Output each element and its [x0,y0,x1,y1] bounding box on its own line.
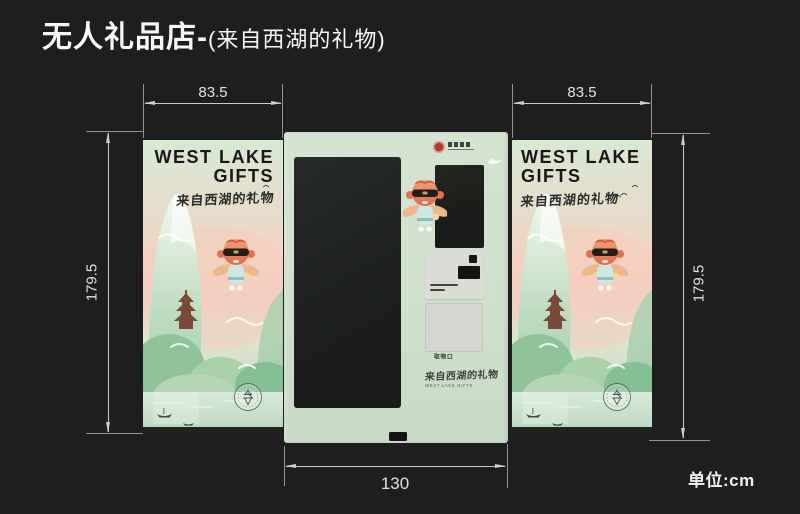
extension-line [512,84,513,138]
extension-line [86,433,143,434]
dim-label-left-panel-width: 83.5 [188,84,238,101]
title-main: 无人礼品店- [42,12,208,56]
qr-scanner-icon[interactable] [458,266,480,279]
arrow-down-icon [681,428,685,439]
arrow-down-icon [106,422,110,433]
page-title: 无人礼品店- (来自西湖的礼物) [42,12,386,56]
payment-instruction-line [430,289,445,291]
extension-line [86,131,143,132]
swan-icon [487,156,502,166]
dimension-line-left-height [104,132,113,433]
title-sub: (来自西湖的礼物) [208,22,386,54]
right-poster-panel: WEST LAKE GIFTS 来自西湖的礼物 [512,140,652,433]
dim-label-left-height: 179.5 [84,258,101,308]
dim-label-right-panel-width: 83.5 [557,84,607,101]
machine-slogan-block: 来自西湖的礼物 WEST LAKE GIFTS [425,367,489,391]
poster-title-line2: GIFTS [155,167,275,186]
arrow-right-icon [640,101,651,105]
pickup-door-label: 取物口 [434,354,453,360]
poster-text-block: WEST LAKE GIFTS 来自西湖的礼物 [521,148,641,208]
pickup-door[interactable] [425,303,483,352]
arrow-right-icon [495,464,506,468]
lock-icon [389,432,407,441]
brand-name-characters [448,142,474,147]
dimension-line-machine-width [285,462,506,471]
poster-title-line1: WEST LAKE [521,148,641,167]
brand-caption-line [448,149,474,151]
product-display-window [294,157,401,408]
camera-icon [469,255,477,263]
payment-instruction-line [430,284,458,286]
mascot-icon [402,177,448,239]
arrow-right-icon [271,101,282,105]
brand-logo [433,141,474,153]
poster-subtitle: 来自西湖的礼物 [154,187,275,210]
poster-subtitle: 来自西湖的礼物 [520,187,641,210]
poster-text-block: WEST LAKE GIFTS 来自西湖的礼物 [155,148,275,208]
machine-slogan: 来自西湖的礼物 [424,366,489,383]
unit-label: 单位:cm [688,466,755,491]
poster-title-line1: WEST LAKE [155,148,275,167]
brand-seal-icon [433,141,445,153]
machine-slogan-caption: WEST LAKE GIFTS [425,384,465,388]
left-poster-panel: WEST LAKE GIFTS 来自西湖的礼物 [143,140,283,433]
dim-label-right-height: 179.5 [691,259,708,309]
design-sheet: 无人礼品店- (来自西湖的礼物) 83.5 83.5 179.5 179.5 [0,0,800,514]
extension-line [507,444,508,488]
extension-line [651,84,652,138]
poster-title-line2: GIFTS [521,167,641,186]
extension-line [282,84,283,138]
extension-line [649,440,710,441]
dim-label-machine-width: 130 [370,474,420,494]
payment-panel [425,251,484,299]
vending-machine: 取物口 来自西湖的礼物 WEST LAKE GIFTS [284,132,508,443]
dimension-line-right-height [679,134,688,439]
extension-line [143,84,144,138]
